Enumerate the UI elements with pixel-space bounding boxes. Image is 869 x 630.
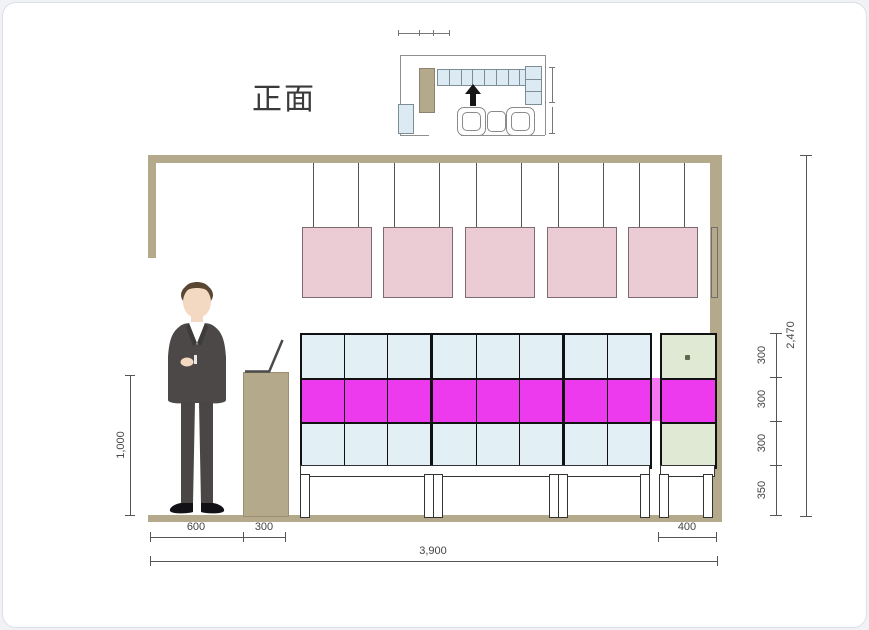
cabinet-cell-bottom: [662, 424, 715, 467]
dim-label-person-zone: 600: [171, 521, 221, 533]
counter-stand: [243, 372, 289, 517]
shelf-cell: [565, 380, 608, 423]
plan-shelf-cell: [509, 70, 521, 85]
dim-tick: [125, 375, 135, 376]
plan-shelf-row: [437, 69, 532, 86]
pendant-cord: [603, 163, 604, 227]
plan-dim-tick: [419, 30, 420, 36]
cabinet-cell-middle: [662, 380, 715, 425]
shelf-cell: [302, 424, 345, 467]
plan-locker: [398, 104, 414, 134]
dim-tick: [770, 515, 782, 516]
shelf-cell: [520, 335, 565, 378]
shelf-row-middle: [302, 380, 650, 425]
pendant-light: [547, 227, 617, 298]
shelf-cell: [520, 424, 565, 467]
dim-tick: [658, 532, 659, 542]
plan-shelf-cell: [462, 70, 474, 85]
shelf-cell: [477, 424, 520, 467]
shelf-cell: [345, 424, 388, 467]
shelf-base: [300, 465, 650, 477]
dim-tick: [717, 556, 718, 566]
cabinet-handle-dot: [685, 355, 690, 360]
dim-tick: [150, 532, 151, 542]
dim-tick: [243, 532, 244, 542]
shelf-unit: [300, 333, 652, 469]
pendant-cord: [394, 163, 395, 227]
north-arrow-icon: [464, 84, 482, 106]
person-figure: [156, 281, 238, 517]
shelf-row-bottom: [302, 424, 650, 467]
dim-label-row3: 300: [756, 421, 768, 465]
dim-line-person-zone: [150, 537, 243, 538]
plan-shelf-cell: [485, 70, 497, 85]
shelf-cell: [608, 380, 650, 423]
plan-armchair-seat: [511, 112, 530, 131]
pendant-cord: [439, 163, 440, 227]
plan-stack-cell: [526, 80, 541, 93]
shelf-cell: [345, 380, 388, 423]
pendant-light: [628, 227, 698, 298]
shelf-cell: [388, 424, 433, 467]
shelf-row-top: [302, 335, 650, 380]
plan-shelf-cell: [438, 70, 450, 85]
shelf-cell: [433, 380, 476, 423]
shelf-leg: [433, 474, 443, 518]
plan-shelf-cell: [473, 70, 485, 85]
dim-tick: [770, 465, 782, 466]
plan-wall-right: [545, 55, 546, 135]
pendant-cord: [558, 163, 559, 227]
plan-dim-tick: [449, 30, 450, 36]
dim-label-counter: 300: [239, 521, 289, 533]
plan-table: [487, 111, 506, 132]
plan-dim-tick: [398, 30, 399, 36]
pendant-light: [383, 227, 453, 298]
plan-dim-tick: [549, 102, 555, 103]
shelf-cell: [477, 380, 520, 423]
plan-right-stack: [525, 66, 542, 105]
dim-label-overall-width: 3,900: [408, 545, 458, 557]
plan-dim-right-2: [552, 107, 553, 133]
plan-dim-tick: [433, 30, 434, 36]
plan-shelf-cell: [497, 70, 509, 85]
shelf-cell: [433, 335, 476, 378]
plan-dim-right-1: [552, 67, 553, 102]
shelf-cell: [565, 335, 608, 378]
pendant-light: [302, 227, 372, 298]
plan-stack-cell: [526, 67, 541, 80]
plan-wall-bottom-left: [400, 135, 429, 136]
dim-label-base: 350: [756, 468, 768, 512]
plan-wardrobe: [419, 68, 435, 113]
shelf-cell: [565, 424, 608, 467]
dim-tick: [716, 532, 717, 542]
dim-tick: [150, 556, 151, 566]
laptop-icon: [242, 336, 286, 374]
shelf-cell: [520, 380, 565, 423]
shelf-cell: [608, 424, 650, 467]
dim-line-overall-width: [150, 561, 717, 562]
shelf-cell: [302, 335, 345, 378]
ceiling-drop-left: [148, 163, 156, 258]
plan-armchair-right: [506, 107, 535, 136]
dim-label-overall-height: 2,470: [785, 305, 797, 365]
dim-label-row1: 300: [756, 333, 768, 377]
plan-armchair-left: [457, 107, 486, 136]
dim-line-stand-height: [130, 375, 131, 515]
dim-label-stand-height: 1,000: [115, 415, 127, 475]
shelf-leg: [558, 474, 568, 518]
dim-line-counter: [243, 537, 285, 538]
pendant-cord: [476, 163, 477, 227]
dim-tick: [125, 515, 135, 516]
side-cabinet: [660, 333, 717, 469]
plan-dim-tick: [549, 67, 555, 68]
dim-tick: [770, 421, 782, 422]
dim-label-row2: 300: [756, 377, 768, 421]
dim-tick: [800, 516, 812, 517]
wall-right-trim: [711, 227, 718, 298]
ceiling-beam: [148, 155, 722, 163]
dim-line-right-chain: [776, 333, 777, 516]
dim-label-cabinet-width: 400: [662, 521, 712, 533]
dim-tick: [770, 377, 782, 378]
pendant-cord: [313, 163, 314, 227]
pendant-cord: [684, 163, 685, 227]
pendant-light: [465, 227, 535, 298]
plan-shelf-cell: [450, 70, 462, 85]
pendant-cord: [639, 163, 640, 227]
plan-armchair-seat: [462, 112, 481, 131]
page-title: 正面: [252, 74, 316, 118]
pendant-cord: [358, 163, 359, 227]
plan-dim-tick: [549, 133, 555, 134]
shelf-cell: [608, 335, 650, 378]
pendant-cord: [521, 163, 522, 227]
dim-line-cabinet-width: [658, 537, 716, 538]
dim-tick: [800, 155, 812, 156]
cabinet-leg: [659, 474, 669, 518]
shelf-cell: [302, 380, 345, 423]
dim-tick: [285, 532, 286, 542]
plan-wall-top: [400, 55, 546, 56]
shelf-cell: [477, 335, 520, 378]
shelf-leg: [300, 474, 310, 518]
shelf-cell: [345, 335, 388, 378]
shelf-cell: [388, 380, 433, 423]
shelf-cell: [433, 424, 476, 467]
cabinet-leg: [703, 474, 713, 518]
dim-tick: [770, 333, 782, 334]
shelf-leg: [640, 474, 650, 518]
plan-stack-cell: [526, 92, 541, 104]
shelf-cell: [388, 335, 433, 378]
dim-line-overall-height: [806, 155, 807, 517]
plan-dim-top: [398, 33, 449, 34]
